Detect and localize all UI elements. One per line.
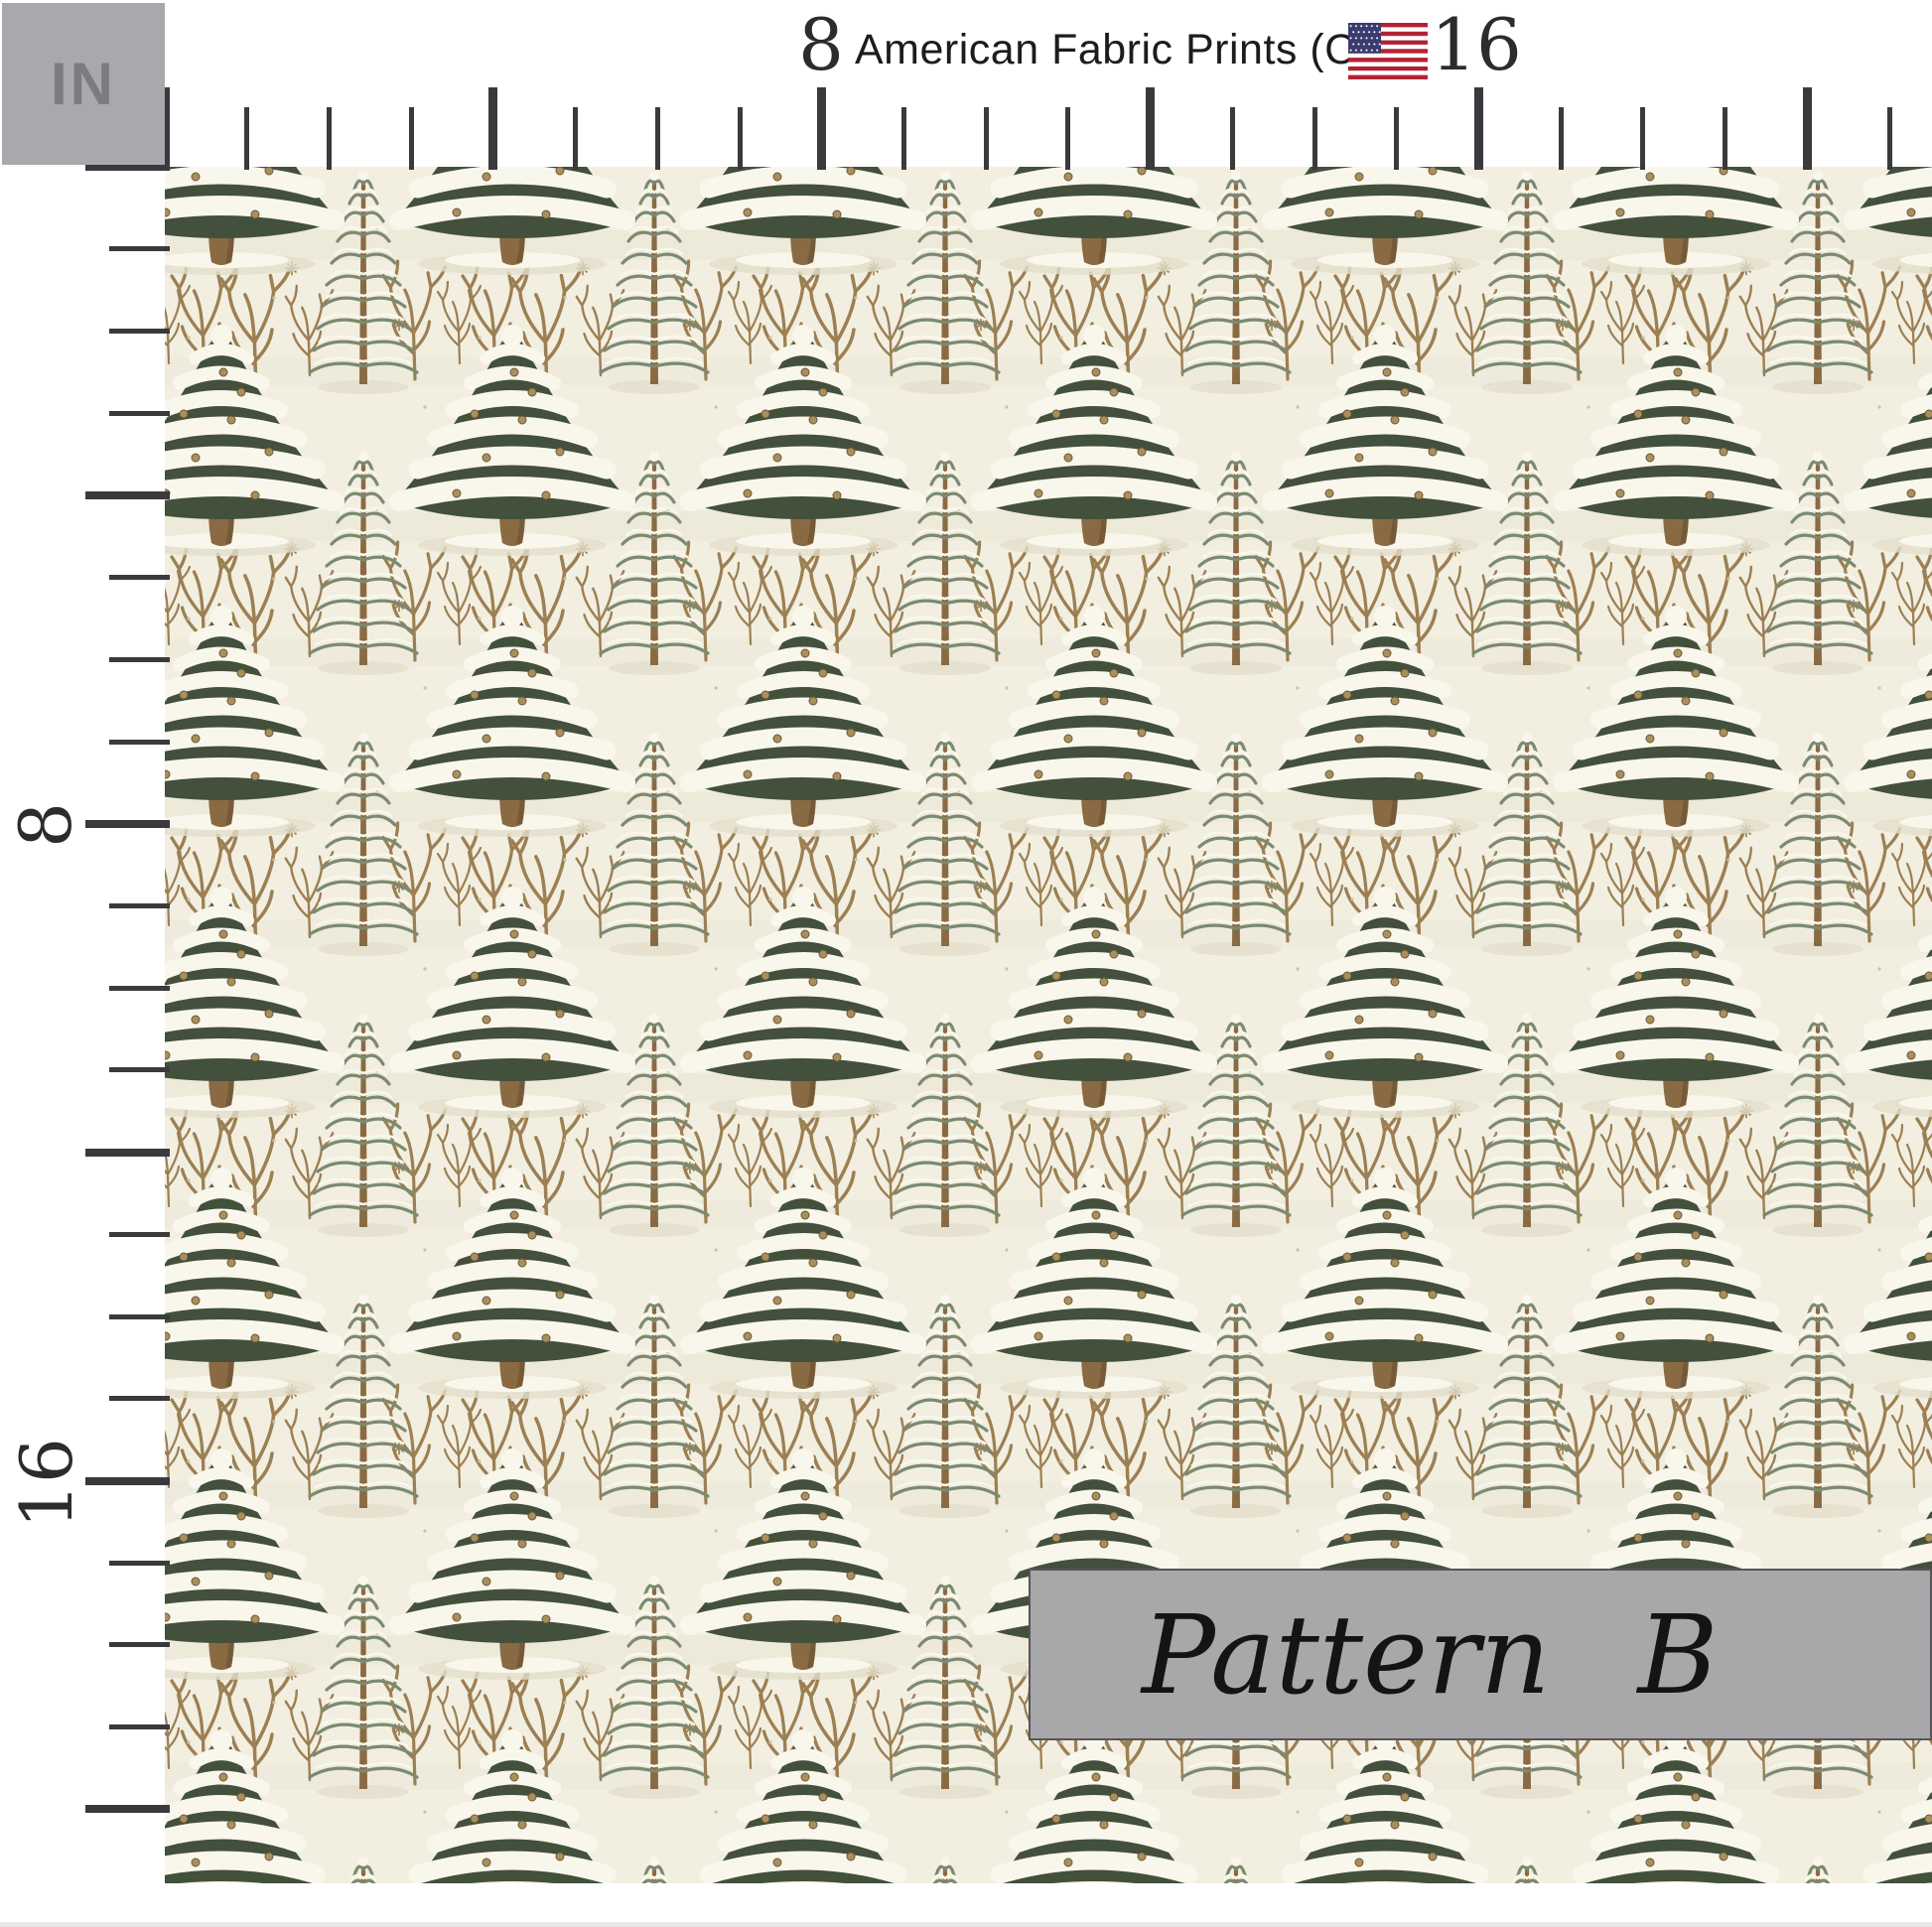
snow-dot xyxy=(272,858,275,861)
ruler-tick xyxy=(1474,87,1483,170)
snow-dot xyxy=(1726,858,1729,861)
snow-dot xyxy=(187,1459,190,1462)
spruce-tree xyxy=(1268,167,1502,275)
snow-dot xyxy=(423,1248,426,1251)
snow-dot xyxy=(1641,1740,1644,1743)
snow-dot xyxy=(1641,1178,1644,1181)
ruler-tick xyxy=(984,107,989,170)
snow-dot xyxy=(187,1178,190,1181)
snow-dot xyxy=(478,1178,481,1181)
ruler-tick xyxy=(738,107,743,170)
snow-dot xyxy=(1059,1459,1062,1462)
ruler-tick xyxy=(1146,87,1155,170)
snow-dot xyxy=(423,1810,426,1813)
snow-dot xyxy=(1059,336,1062,339)
ruler-tick xyxy=(109,740,170,745)
ruler-tick xyxy=(85,1149,170,1157)
snow-dot xyxy=(1641,617,1644,619)
ruler-tick xyxy=(1803,87,1812,170)
snow-dot xyxy=(1350,1740,1353,1743)
snow-dot xyxy=(272,296,275,299)
snow-dot xyxy=(1587,967,1589,970)
ruler-top: 8 American Fabric Prints (C) 16 xyxy=(0,0,1932,167)
snow-dot xyxy=(1877,1810,1880,1813)
ruler-tick xyxy=(244,107,249,170)
snow-dot xyxy=(1587,686,1589,689)
snow-dot xyxy=(1641,897,1644,900)
ruler-tick xyxy=(85,1477,170,1485)
snow-dot xyxy=(478,897,481,900)
snow-dot xyxy=(1587,1529,1589,1532)
ruler-tick xyxy=(109,1642,170,1647)
snow-dot xyxy=(1059,1740,1062,1743)
snow-dot xyxy=(1587,405,1589,408)
ruler-tick xyxy=(1065,107,1070,170)
fabric-mockup-page: 8 American Fabric Prints (C) 16 8 16 IN … xyxy=(0,0,1932,1927)
snow-dot xyxy=(1005,405,1008,408)
snow-dot xyxy=(768,1178,771,1181)
snow-dot xyxy=(714,967,717,970)
ruler-tick xyxy=(409,107,414,170)
left-scale-number-16: 16 xyxy=(11,1438,82,1529)
snow-dot xyxy=(1296,1810,1299,1813)
snow-dot xyxy=(1726,577,1729,580)
snow-dot xyxy=(854,1139,857,1142)
snow-dot xyxy=(1877,686,1880,689)
ruler-tick xyxy=(1887,107,1892,170)
snow-dot xyxy=(1145,1139,1148,1142)
snow-dot xyxy=(1877,405,1880,408)
snow-dot xyxy=(1587,1810,1589,1813)
snow-dot xyxy=(478,1459,481,1462)
snow-dot xyxy=(1436,1420,1439,1423)
snow-dot xyxy=(1350,1178,1353,1181)
snow-dot xyxy=(1145,296,1148,299)
spruce-tree xyxy=(686,167,920,275)
snow-dot xyxy=(854,296,857,299)
ruler-tick xyxy=(109,1067,170,1072)
ruler-tick xyxy=(109,986,170,991)
snow-dot xyxy=(187,897,190,900)
ruler-tick xyxy=(109,1724,170,1729)
ruler-tick xyxy=(327,107,332,170)
snow-dot xyxy=(1726,296,1729,299)
ruler-tick xyxy=(109,903,170,908)
spruce-tree xyxy=(395,167,629,275)
ruler-tick xyxy=(655,107,660,170)
spruce-tree xyxy=(977,167,1211,275)
left-scale-number-8: 8 xyxy=(10,802,81,848)
ruler-tick xyxy=(109,411,170,416)
unit-label: IN xyxy=(51,50,116,118)
ruler-tick xyxy=(1559,107,1564,170)
ruler-tick xyxy=(109,1561,170,1566)
snow-dot xyxy=(714,405,717,408)
ruler-tick xyxy=(109,1396,170,1401)
ruler-left: 8 16 xyxy=(0,0,165,1927)
snow-dot xyxy=(768,1740,771,1743)
snow-dot xyxy=(1436,858,1439,861)
ruler-tick xyxy=(1394,107,1399,170)
bottom-edge-shadow xyxy=(0,1922,1932,1927)
snow-dot xyxy=(1350,1459,1353,1462)
snow-dot xyxy=(1436,577,1439,580)
ruler-tick xyxy=(1723,107,1727,170)
snow-dot xyxy=(423,1529,426,1532)
snow-dot xyxy=(1145,577,1148,580)
ruler-tick xyxy=(85,820,170,828)
ruler-tick xyxy=(1230,107,1235,170)
ruler-tick xyxy=(817,87,826,170)
snow-dot xyxy=(1296,405,1299,408)
ruler-tick xyxy=(109,1232,170,1237)
snow-dot xyxy=(187,1740,190,1743)
ruler-tick xyxy=(85,1805,170,1813)
snow-dot xyxy=(187,336,190,339)
us-flag-icon xyxy=(1348,23,1428,79)
ruler-tick xyxy=(1312,107,1317,170)
snow-dot xyxy=(563,577,566,580)
snow-dot xyxy=(1641,1459,1644,1462)
snow-dot xyxy=(854,1701,857,1704)
snow-dot xyxy=(714,686,717,689)
snow-dot xyxy=(1145,1420,1148,1423)
snow-dot xyxy=(1877,967,1880,970)
unit-label-box: IN xyxy=(2,3,165,165)
snow-dot xyxy=(1005,967,1008,970)
snow-dot xyxy=(272,577,275,580)
pattern-word: Pattern xyxy=(1142,1600,1551,1710)
snow-dot xyxy=(714,1529,717,1532)
ruler-tick xyxy=(573,107,578,170)
pattern-letter: B xyxy=(1638,1600,1719,1710)
snow-dot xyxy=(714,1248,717,1251)
snow-dot xyxy=(187,617,190,619)
snow-dot xyxy=(1296,1248,1299,1251)
snow-dot xyxy=(423,967,426,970)
snow-dot xyxy=(854,858,857,861)
snow-dot xyxy=(854,1420,857,1423)
snow-dot xyxy=(1726,1139,1729,1142)
snow-dot xyxy=(272,1139,275,1142)
snow-dot xyxy=(1296,686,1299,689)
snow-dot xyxy=(1296,1529,1299,1532)
top-scale-number-16: 16 xyxy=(1431,9,1522,80)
snow-dot xyxy=(768,336,771,339)
snow-dot xyxy=(768,1459,771,1462)
snow-dot xyxy=(1059,617,1062,619)
snow-dot xyxy=(1005,1248,1008,1251)
snow-dot xyxy=(1059,897,1062,900)
snow-dot xyxy=(854,577,857,580)
snow-dot xyxy=(563,1420,566,1423)
snow-dot xyxy=(1005,1810,1008,1813)
snow-dot xyxy=(1877,1248,1880,1251)
snow-dot xyxy=(1145,858,1148,861)
spruce-tree xyxy=(1559,167,1793,275)
snow-dot xyxy=(423,686,426,689)
snow-dot xyxy=(1436,296,1439,299)
snow-dot xyxy=(1436,1139,1439,1142)
snow-dot xyxy=(478,617,481,619)
snow-dot xyxy=(478,1740,481,1743)
snow-dot xyxy=(1641,336,1644,339)
snow-dot xyxy=(478,336,481,339)
snow-dot xyxy=(1350,617,1353,619)
snow-dot xyxy=(768,897,771,900)
snow-dot xyxy=(1726,1420,1729,1423)
snow-dot xyxy=(1350,336,1353,339)
snow-dot xyxy=(714,1810,717,1813)
snow-dot xyxy=(423,405,426,408)
ruler-tick xyxy=(109,1314,170,1319)
snow-dot xyxy=(1296,967,1299,970)
snow-dot xyxy=(272,1420,275,1423)
ruler-tick xyxy=(109,575,170,580)
snow-dot xyxy=(1587,1248,1589,1251)
ruler-tick xyxy=(901,107,906,170)
pattern-name-banner: Pattern B xyxy=(1029,1569,1932,1740)
snow-dot xyxy=(768,617,771,619)
snow-dot xyxy=(272,1701,275,1704)
ruler-tick xyxy=(85,491,170,499)
snow-dot xyxy=(1005,1529,1008,1532)
snow-dot xyxy=(1877,1529,1880,1532)
snow-dot xyxy=(563,858,566,861)
top-scale-number-8: 8 xyxy=(798,9,844,80)
snow-dot xyxy=(1350,897,1353,900)
ruler-tick xyxy=(109,329,170,334)
ruler-tick xyxy=(109,246,170,251)
ruler-tick xyxy=(488,87,497,170)
ruler-tick xyxy=(109,657,170,662)
snow-dot xyxy=(563,1139,566,1142)
snow-dot xyxy=(1059,1178,1062,1181)
snow-dot xyxy=(563,1701,566,1704)
brand-text: American Fabric Prints (C) xyxy=(855,29,1371,71)
ruler-tick xyxy=(1640,107,1645,170)
snow-dot xyxy=(563,296,566,299)
snow-dot xyxy=(1005,686,1008,689)
